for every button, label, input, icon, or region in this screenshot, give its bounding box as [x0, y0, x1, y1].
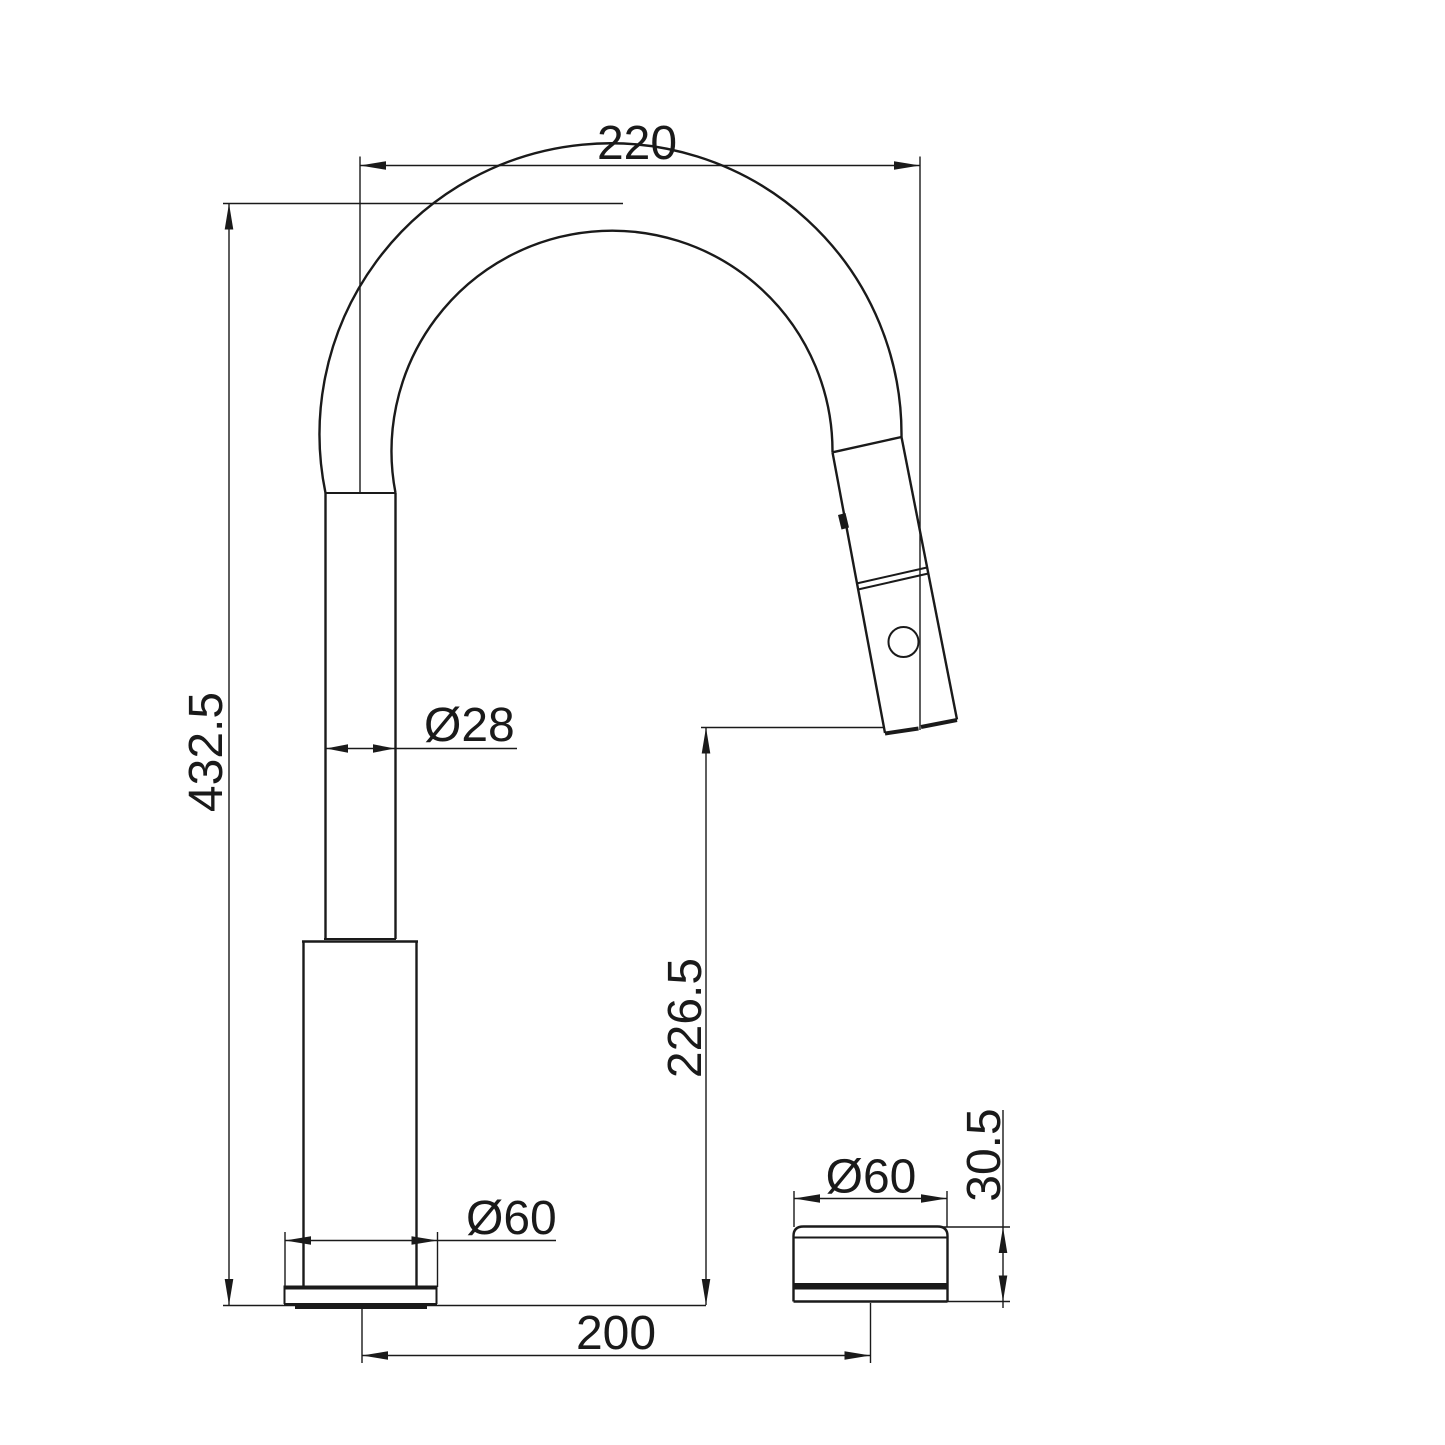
- dim-outlet-height: 226.5: [659, 728, 884, 1306]
- dim-pipe-diameter: Ø28: [326, 699, 517, 753]
- spray-head: [833, 437, 958, 734]
- dim-overall-height: 432.5: [180, 204, 623, 1306]
- arrowhead-left: [326, 744, 348, 752]
- head-clip-nub: [838, 513, 849, 530]
- arrowhead-right: [373, 744, 395, 752]
- dim-knob-height: 30.5: [941, 1108, 1011, 1308]
- dim-spout-reach: 220: [360, 117, 920, 730]
- arrowhead-right: [845, 1351, 871, 1360]
- dim-knob-diameter: Ø60: [794, 1151, 947, 1228]
- arrowhead-top: [225, 204, 234, 230]
- head-left-edge: [833, 452, 886, 733]
- arrowhead-left: [285, 1236, 311, 1245]
- head-top-joint: [833, 437, 902, 452]
- arrowhead-left: [362, 1351, 388, 1360]
- dim-overall-height-label: 432.5: [180, 692, 233, 812]
- arrowhead-bottom: [702, 1279, 711, 1305]
- technical-drawing-page: 220 432.5 Ø28 226.5 Ø60: [0, 0, 1445, 1445]
- dim-pipe-diameter-label: Ø28: [424, 699, 515, 752]
- dim-centre-distance: 200: [362, 1303, 871, 1363]
- faucet-outline: [284, 143, 958, 1307]
- dim-knob-diameter-label: Ø60: [826, 1151, 917, 1204]
- outlet-face-left: [885, 729, 919, 734]
- arrowhead-right: [412, 1236, 438, 1245]
- spout-inner-arc: [392, 231, 833, 493]
- faucet-dimension-drawing: 220 432.5 Ø28 226.5 Ø60: [0, 0, 1445, 1445]
- arrowhead-bottom: [225, 1279, 234, 1305]
- dim-base-diameter: Ø60: [285, 1192, 557, 1287]
- arrowhead-top: [702, 728, 711, 754]
- arrowhead-left: [360, 161, 386, 170]
- control-knob: [794, 1227, 948, 1302]
- knob-grip-band: [795, 1283, 947, 1290]
- dim-outlet-height-label: 226.5: [659, 958, 712, 1078]
- spray-button: [889, 627, 919, 657]
- dim-knob-height-label: 30.5: [958, 1108, 1011, 1201]
- arrowhead-bottom: [999, 1276, 1008, 1302]
- arrowhead-left: [794, 1194, 820, 1203]
- arrowhead-top: [999, 1227, 1008, 1253]
- arrowhead-right: [921, 1194, 947, 1203]
- arrowhead-right: [894, 161, 920, 170]
- dim-base-diameter-label: Ø60: [466, 1192, 557, 1245]
- dim-centre-distance-label: 200: [576, 1307, 656, 1360]
- outlet-face-right: [921, 720, 957, 727]
- dim-spout-reach-label: 220: [597, 117, 677, 170]
- spout-outer-arc: [320, 143, 902, 493]
